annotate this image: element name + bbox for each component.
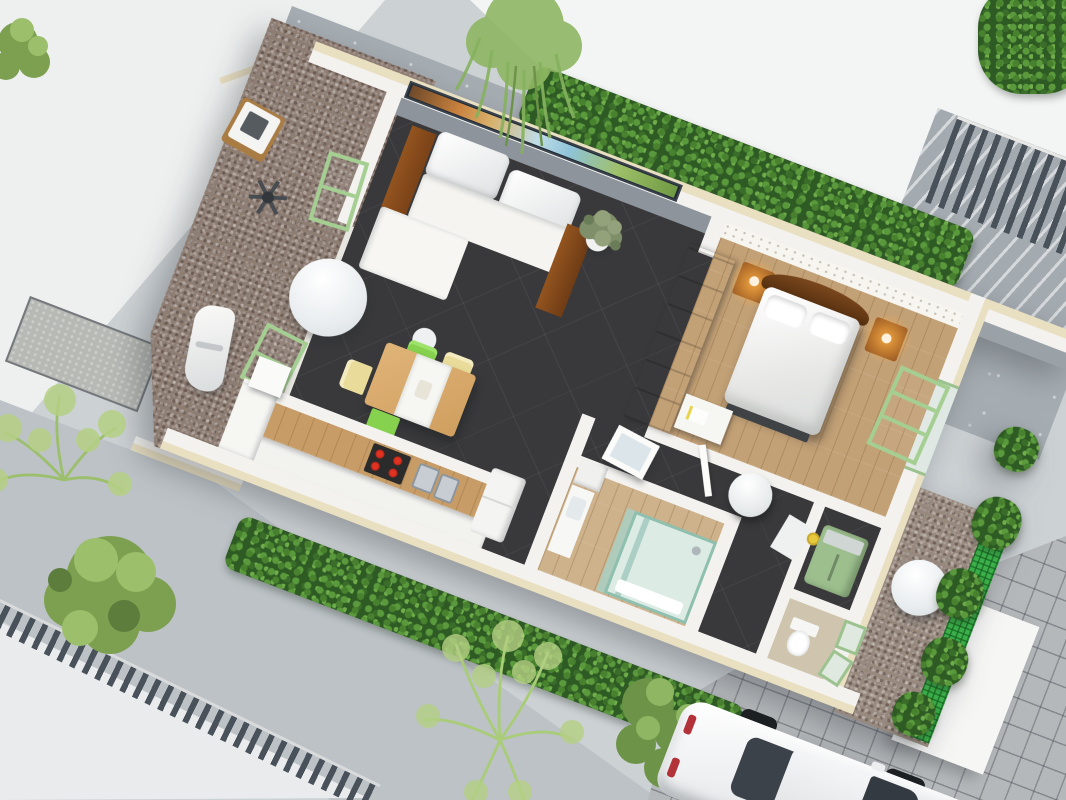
aerial-house-render xyxy=(0,0,1066,800)
vanity-basin xyxy=(565,495,588,521)
shrub-top-left-corner xyxy=(0,10,56,100)
book xyxy=(685,406,709,426)
lounger-rung xyxy=(882,414,926,436)
fridge-seam xyxy=(482,495,516,510)
shower-head xyxy=(690,545,702,557)
nightstand xyxy=(864,316,909,362)
weeping-willow xyxy=(420,0,630,160)
tree-lower-left xyxy=(20,500,200,680)
tree-bottom-center xyxy=(400,620,600,800)
chair-crossbar xyxy=(322,185,356,199)
chaise-bend xyxy=(195,341,224,352)
hedge-corner-top-right xyxy=(978,0,1066,94)
burner xyxy=(374,448,386,460)
burner xyxy=(392,455,404,467)
burner xyxy=(387,467,399,479)
fridge-handle xyxy=(827,554,840,581)
burner xyxy=(369,460,381,472)
lounger-rung xyxy=(893,390,937,412)
